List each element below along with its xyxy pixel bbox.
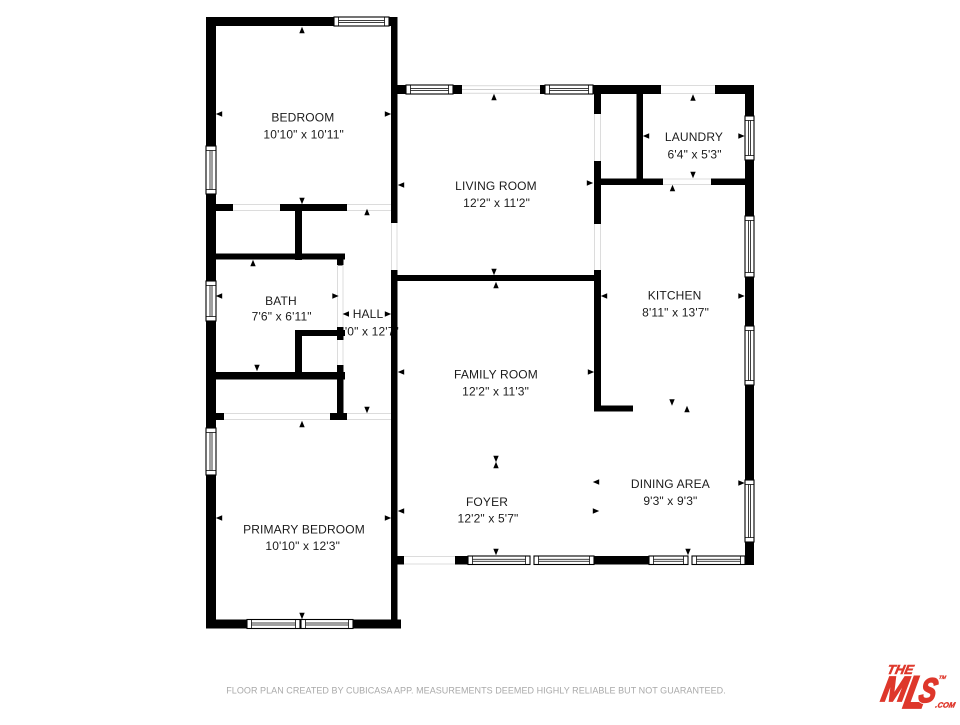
svg-text:12'2" x 11'3": 12'2" x 11'3" [462,385,529,399]
svg-text:4'0" x 12'7": 4'0" x 12'7" [338,325,399,339]
svg-text:12'2" x 11'2": 12'2" x 11'2" [463,196,530,210]
svg-text:FAMILY ROOM: FAMILY ROOM [454,368,538,382]
svg-text:BATH: BATH [265,294,297,308]
svg-text:PRIMARY BEDROOM: PRIMARY BEDROOM [243,522,365,536]
svg-text:.COM: .COM [935,701,957,710]
svg-text:FLOOR PLAN CREATED BY CUBICASA: FLOOR PLAN CREATED BY CUBICASA APP. MEAS… [226,686,726,696]
svg-text:9'3" x 9'3": 9'3" x 9'3" [643,494,697,508]
svg-text:10'10" x 12'3": 10'10" x 12'3" [265,539,340,553]
svg-text:12'2" x 5'7": 12'2" x 5'7" [458,511,519,525]
svg-text:LAUNDRY: LAUNDRY [665,130,723,144]
svg-text:BEDROOM: BEDROOM [271,111,334,125]
svg-text:FOYER: FOYER [466,495,508,509]
svg-text:DINING AREA: DINING AREA [631,477,710,491]
svg-text:8'11" x 13'7": 8'11" x 13'7" [642,305,709,319]
svg-text:6'4" x 5'3": 6'4" x 5'3" [668,147,722,161]
svg-text:HALL: HALL [353,307,384,321]
svg-text:KITCHEN: KITCHEN [648,289,702,303]
svg-text:7'6" x 6'11": 7'6" x 6'11" [252,310,312,324]
svg-text:10'10" x 10'11": 10'10" x 10'11" [263,128,344,142]
svg-text:LIVING ROOM: LIVING ROOM [455,179,537,193]
